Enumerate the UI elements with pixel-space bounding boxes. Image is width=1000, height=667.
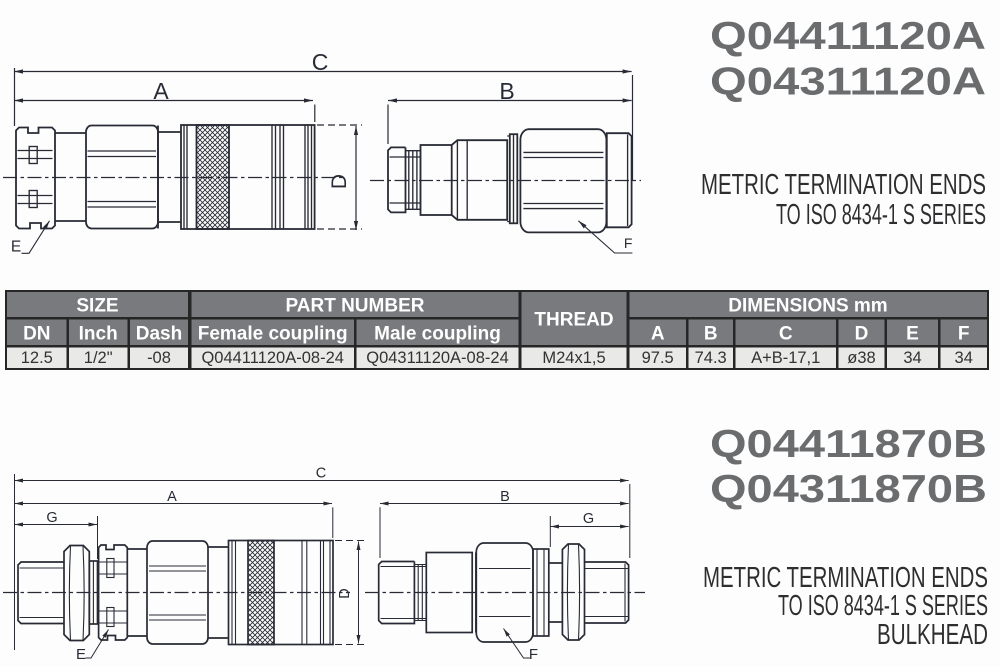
svg-text:74.3: 74.3 — [695, 349, 727, 367]
svg-text:E: E — [11, 238, 21, 255]
svg-text:Male coupling: Male coupling — [374, 324, 501, 345]
svg-text:34: 34 — [903, 349, 921, 367]
svg-text:DIMENSIONS mm: DIMENSIONS mm — [728, 296, 887, 317]
svg-text:D: D — [855, 324, 869, 345]
svg-text:Q04311120A: Q04311120A — [710, 61, 986, 104]
svg-text:M24x1,5: M24x1,5 — [542, 349, 605, 367]
svg-text:Q04411870B: Q04411870B — [710, 423, 987, 466]
svg-text:D: D — [328, 174, 351, 189]
svg-text:C: C — [779, 324, 793, 345]
svg-text:TO ISO 8434-1 S SERIES: TO ISO 8434-1 S SERIES — [776, 199, 986, 231]
svg-text:1/2": 1/2" — [84, 349, 113, 367]
svg-text:G: G — [46, 510, 57, 526]
svg-text:A+B-17,1: A+B-17,1 — [751, 349, 820, 367]
svg-text:D: D — [337, 588, 353, 598]
svg-text:97.5: 97.5 — [642, 349, 674, 367]
svg-text:SIZE: SIZE — [76, 296, 118, 317]
svg-text:Q04411120A: Q04411120A — [710, 15, 986, 58]
svg-text:34: 34 — [955, 349, 973, 367]
svg-text:Dash: Dash — [136, 324, 182, 345]
svg-text:12.5: 12.5 — [21, 349, 53, 367]
svg-text:F: F — [624, 235, 633, 251]
svg-text:TO ISO 8434-1 S SERIES: TO ISO 8434-1 S SERIES — [778, 590, 988, 622]
svg-text:A: A — [167, 489, 177, 505]
svg-text:DN: DN — [23, 324, 50, 345]
svg-text:C: C — [312, 49, 329, 75]
svg-text:METRIC TERMINATION ENDS: METRIC TERMINATION ENDS — [701, 169, 986, 201]
svg-text:B: B — [500, 489, 510, 505]
svg-text:F: F — [529, 646, 538, 663]
svg-text:Inch: Inch — [79, 324, 118, 345]
svg-text:A: A — [651, 324, 665, 345]
svg-text:-08: -08 — [147, 349, 171, 367]
svg-text:A: A — [153, 78, 169, 104]
svg-text:ø38: ø38 — [847, 349, 875, 367]
svg-text:B: B — [704, 324, 718, 345]
svg-text:PART NUMBER: PART NUMBER — [286, 296, 425, 317]
svg-text:Q04411120A-08-24: Q04411120A-08-24 — [201, 349, 344, 367]
svg-text:B: B — [499, 78, 514, 104]
svg-text:Q04311120A-08-24: Q04311120A-08-24 — [366, 349, 509, 367]
svg-text:C: C — [316, 466, 326, 482]
svg-text:E: E — [906, 324, 919, 345]
svg-text:E: E — [76, 646, 86, 663]
svg-text:THREAD: THREAD — [534, 310, 613, 331]
svg-text:BULKHEAD: BULKHEAD — [877, 619, 988, 651]
svg-text:Q04311870B: Q04311870B — [710, 468, 987, 511]
svg-text:Female coupling: Female coupling — [198, 324, 348, 345]
svg-text:F: F — [958, 324, 970, 345]
svg-text:G: G — [583, 511, 594, 527]
